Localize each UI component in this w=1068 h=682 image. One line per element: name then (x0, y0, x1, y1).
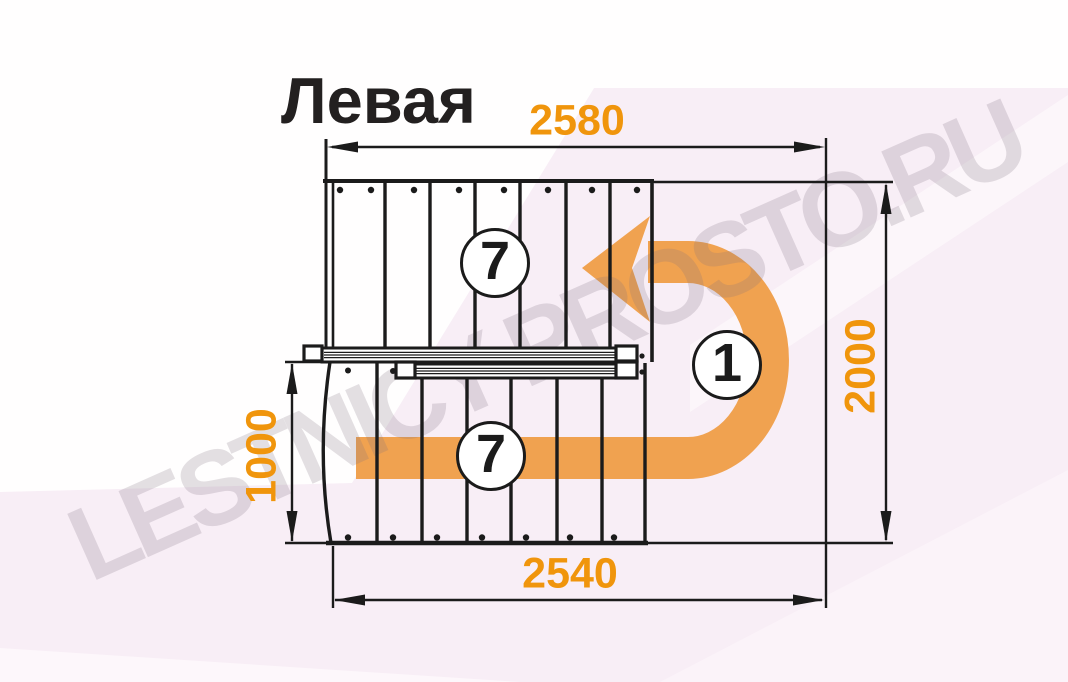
dimension-label-bottom: 2540 (522, 550, 618, 599)
upper-flight-step-count-badge: 7 (460, 228, 530, 298)
page-title: Левая (281, 63, 476, 138)
dimension-label-right: 2000 (837, 318, 886, 414)
dimension-label-top: 2580 (529, 97, 625, 146)
dimension-label-left: 1000 (238, 408, 287, 504)
lower-flight-step-count-badge: 7 (456, 421, 526, 491)
upper-flight-screw-dots (337, 187, 640, 193)
landing-platform (304, 346, 645, 378)
landing-bracket (396, 362, 415, 378)
landing-count-badge: 1 (692, 330, 762, 400)
landing-bracket (616, 346, 637, 361)
landing-bracket (304, 346, 322, 361)
landing-bracket (616, 362, 637, 378)
staircase-drawing-canvas: LESTNICY-PROSTO.RU (0, 0, 1068, 682)
